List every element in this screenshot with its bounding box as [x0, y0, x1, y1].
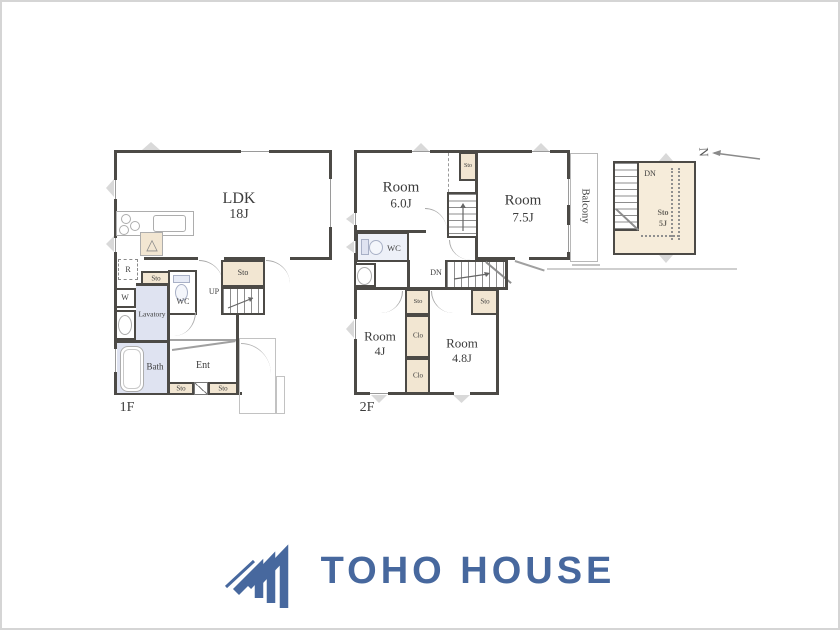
room-se-label: Room — [446, 337, 478, 350]
clo-label: Clo — [413, 333, 423, 340]
door-arc — [425, 208, 447, 231]
ent-label: Ent — [196, 361, 210, 371]
door-arc — [199, 260, 223, 284]
wall — [136, 283, 168, 286]
door-leaf — [172, 340, 236, 350]
wall — [470, 392, 499, 395]
door-arc — [266, 260, 290, 284]
clo-label: Clo — [413, 373, 423, 380]
floor-plan-page: △ R Sto W WC Lavatory Bath Ent Sto — [0, 0, 840, 630]
window — [241, 150, 269, 153]
vent-triangle-icon — [106, 236, 114, 252]
sto-label: Sto — [218, 386, 227, 393]
door-mark-icon — [453, 395, 470, 403]
wall — [407, 260, 410, 289]
attic-size-label: 5J — [659, 220, 667, 228]
sto-label: Sto — [480, 299, 489, 306]
window — [354, 213, 357, 225]
wall — [505, 260, 508, 290]
wash-basin — [357, 267, 372, 285]
room-sw-label: Room — [364, 330, 396, 343]
wc-label: WC — [177, 298, 190, 306]
wall — [290, 257, 332, 260]
refrigerator-triangle-icon: △ — [146, 238, 158, 253]
ground-line — [547, 268, 737, 270]
toho-house-wordmark: TOHO HOUSE — [321, 552, 616, 590]
wash-basin — [118, 315, 132, 335]
floor-1f-label: 1F — [120, 401, 135, 415]
vent-triangle-icon — [659, 153, 673, 161]
dn-label: DN — [644, 170, 656, 178]
window — [114, 238, 117, 252]
stove-burner-icon — [119, 225, 129, 235]
floor-2f-label: 2F — [360, 401, 375, 415]
wall — [388, 392, 454, 395]
wall — [114, 150, 117, 180]
room-se-size: 4.8J — [452, 352, 472, 364]
shoe-box — [194, 382, 208, 395]
door-arc — [449, 240, 471, 260]
vent-triangle-icon — [106, 179, 114, 197]
wall — [354, 339, 357, 395]
vent-triangle-icon — [346, 320, 354, 338]
wall — [354, 150, 357, 213]
room-nw-size: 6.0J — [390, 197, 411, 210]
north-arrow-line-icon — [710, 146, 762, 162]
wall — [167, 283, 170, 342]
stairs-arrow-icon — [450, 265, 500, 285]
vent-triangle-icon — [659, 255, 673, 263]
up-label: UP — [209, 288, 219, 296]
balcony-label: Balcony — [579, 189, 590, 224]
stove-burner-icon — [121, 214, 131, 224]
porch-step — [276, 376, 285, 414]
wall — [329, 227, 332, 260]
stairs-arrow-icon — [451, 197, 475, 235]
lavatory-label: Lavatory — [138, 310, 165, 318]
wall — [269, 150, 332, 153]
window — [114, 180, 117, 199]
wall — [496, 290, 499, 395]
door-arc — [381, 291, 403, 313]
toilet-bowl — [369, 240, 383, 255]
wall — [430, 150, 532, 153]
room-ne-size: 7.5J — [512, 211, 533, 224]
wall — [529, 257, 570, 260]
stairs-arrow-icon — [225, 290, 263, 312]
wall — [354, 392, 370, 395]
partition-dashed — [448, 153, 449, 192]
kitchen-sink — [153, 215, 186, 232]
sto-label: Sto — [176, 386, 185, 393]
toilet-tank — [361, 239, 369, 255]
wall-light — [572, 264, 600, 266]
vent-triangle-icon — [142, 142, 160, 150]
wall — [354, 150, 412, 153]
attic-sto-label: Sto — [657, 209, 668, 217]
toho-house-mark-icon — [224, 530, 306, 612]
sto-label: Sto — [414, 299, 423, 306]
room-ne-label: Room — [505, 194, 542, 209]
washer-label: W — [121, 294, 129, 302]
door-arc — [431, 291, 453, 313]
sto-label: Sto — [238, 269, 249, 277]
sto-label: Sto — [151, 276, 160, 283]
window — [329, 179, 332, 227]
window — [370, 392, 388, 395]
wall — [329, 150, 332, 179]
north-letter: N — [697, 147, 710, 157]
stove-burner-icon — [130, 221, 140, 231]
dn-label: DN — [430, 269, 442, 277]
sto-label: Sto — [464, 163, 472, 169]
low-ceiling-hatch — [641, 235, 679, 237]
balcony-door-leaf — [515, 260, 545, 271]
toilet-tank — [173, 275, 190, 283]
window — [354, 319, 357, 339]
vent-triangle-icon — [533, 143, 549, 151]
ldk-label: LDK — [223, 191, 256, 207]
ldk-size-label: 18J — [229, 208, 248, 222]
bathtub-inner — [123, 349, 141, 389]
bath-label: Bath — [147, 363, 164, 372]
wall — [114, 150, 241, 153]
vent-triangle-icon — [346, 213, 354, 225]
room-nw-label: Room — [383, 181, 420, 196]
r-label: R — [125, 266, 130, 274]
room-sw-size: 4J — [375, 345, 386, 357]
door-arc — [174, 312, 196, 336]
wall — [144, 257, 198, 260]
wc-label: WC — [387, 244, 401, 253]
vent-triangle-icon — [413, 143, 429, 151]
vent-triangle-icon — [346, 241, 354, 253]
low-ceiling-hatch — [671, 168, 680, 240]
